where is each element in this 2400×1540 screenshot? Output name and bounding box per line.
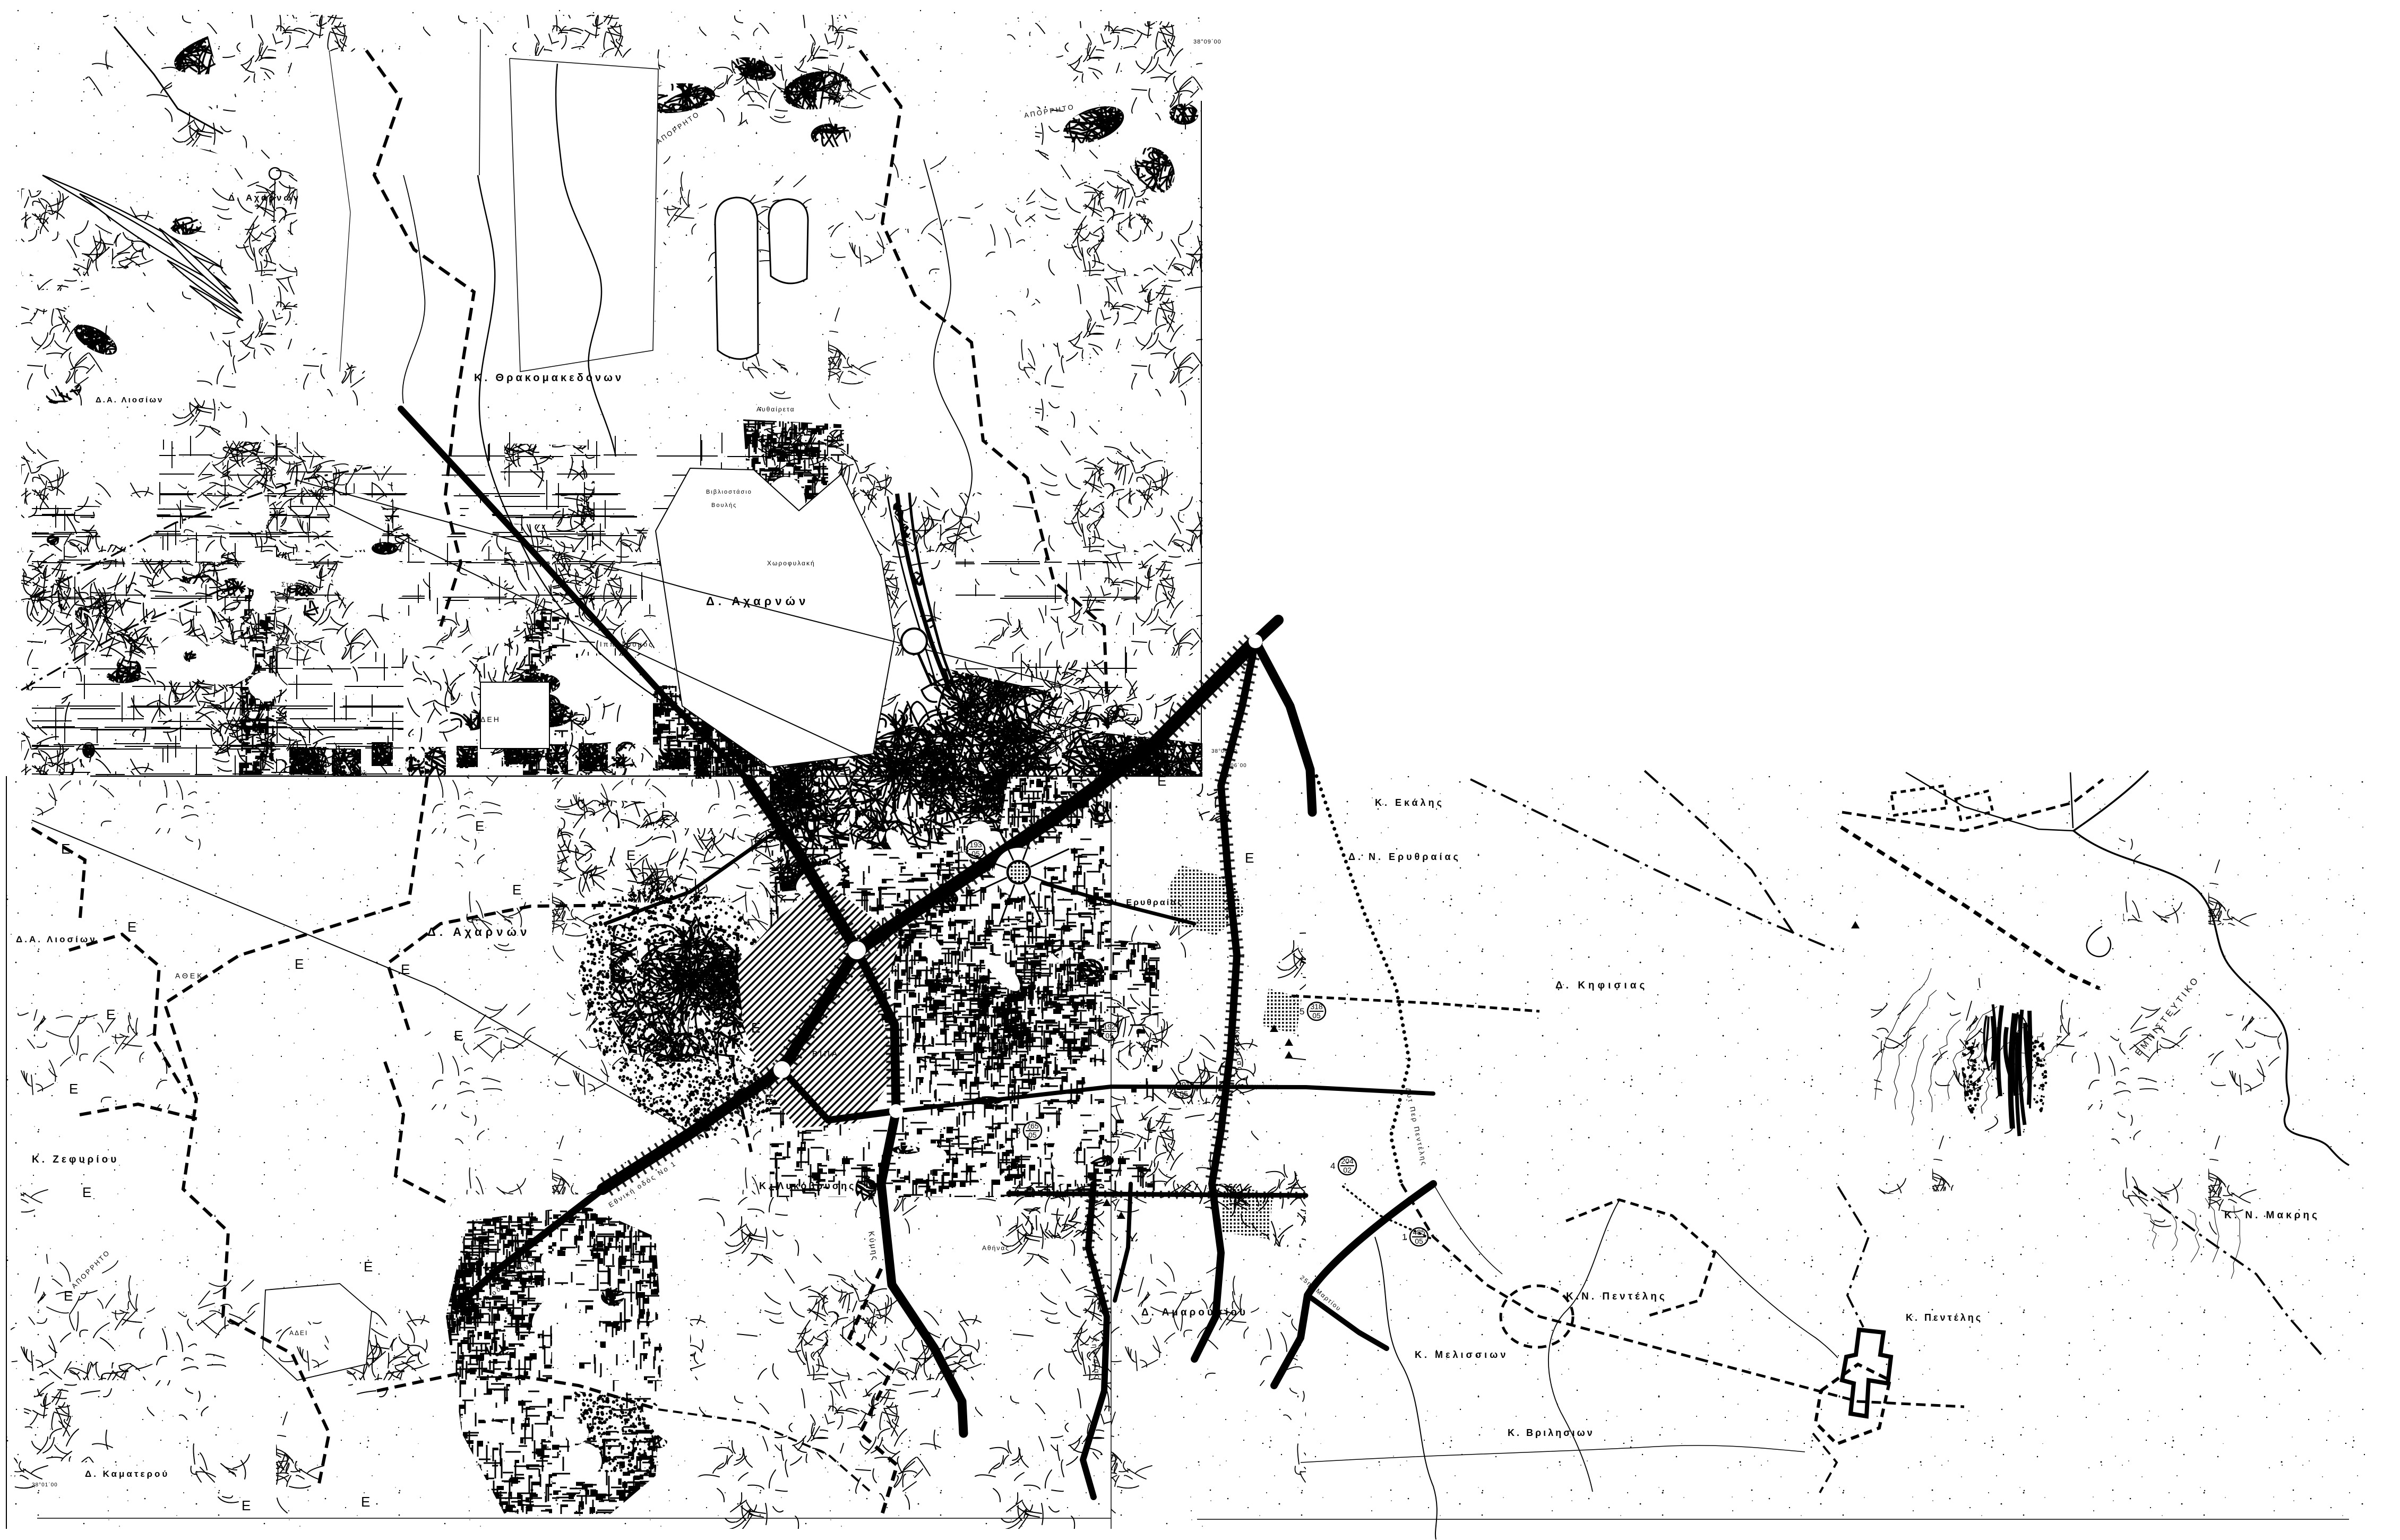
svg-text:Στρατός: Στρατός [281,581,312,588]
svg-text:02: 02 [1343,1166,1352,1174]
svg-text:38°06΄00: 38°06΄00 [1211,748,1237,754]
svg-text:Δ. Κηφισιας: Δ. Κηφισιας [1555,980,1648,991]
svg-text:Βιβλιοστάσιο: Βιβλιοστάσιο [706,489,752,495]
svg-text:Δ. Αχαρνών: Δ. Αχαρνών [706,595,809,608]
svg-text:E: E [751,1020,760,1036]
svg-text:38°09΄00: 38°09΄00 [1193,39,1221,45]
svg-text:E: E [61,841,70,857]
svg-text:Δ.Α. Λιοσίων: Δ.Α. Λιοσίων [96,395,164,405]
svg-text:E: E [364,1259,373,1275]
svg-text:Χωροφυλακή: Χωροφυλακή [767,560,815,567]
svg-text:E: E [661,807,670,823]
svg-text:E: E [82,1184,91,1200]
svg-text:E: E [454,1028,463,1044]
svg-text:E: E [127,919,136,935]
svg-text:05: 05 [1415,1237,1423,1245]
svg-text:Κ. Βριλησιων: Κ. Βριλησιων [1508,1427,1595,1438]
svg-text:E: E [1245,850,1254,866]
svg-text:05: 05 [1105,1031,1114,1040]
svg-text:Βουλής: Βουλής [711,502,737,509]
svg-text:E: E [242,1498,251,1513]
svg-text:Κ. Λυκόβρυσης: Κ. Λυκόβρυσης [759,1181,856,1191]
svg-text:05: 05 [1180,1089,1188,1098]
svg-text:Δ. Αμαρουσίου: Δ. Αμαρουσίου [1141,1307,1248,1318]
svg-text:E: E [69,1081,78,1097]
svg-text:Δ. Αχαρνών: Δ. Αχαρνών [427,925,530,939]
svg-text:05: 05 [1312,1011,1321,1020]
svg-text:05: 05 [971,849,980,858]
svg-text:E: E [361,1494,370,1510]
svg-text:ΒΙΠΑ: ΒΙΠΑ [812,1049,839,1059]
svg-text:E: E [64,1288,73,1304]
svg-text:Δ. Αχαρνών: Δ. Αχαρνών [228,193,300,203]
svg-text:Κ. Πεντέλης: Κ. Πεντέλης [1906,1312,1983,1323]
svg-text:E: E [1221,807,1230,823]
svg-text:Δ.Α. Λιοσίων: Δ.Α. Λιοσίων [16,934,97,944]
svg-text:E: E [764,1091,773,1107]
svg-text:E: E [626,847,635,863]
svg-text:318: 318 [1310,1002,1323,1011]
svg-text:E: E [512,882,521,898]
svg-text:ΑΘΕΚ: ΑΘΕΚ [175,971,204,980]
svg-text:Δ.Ν. Ερυθραίας: Δ.Ν. Ερυθραίας [1099,898,1183,907]
svg-text:E: E [401,961,410,977]
svg-text:Κ. Ζεφυρίου: Κ. Ζεφυρίου [32,1154,119,1165]
svg-text:ΑΔΕΙ: ΑΔΕΙ [289,1329,308,1337]
svg-text:Κ. Θρακομακεδόνων: Κ. Θρακομακεδόνων [474,372,624,384]
svg-text:Στρατός: Στρατός [340,770,368,777]
svg-text:Δ. Καματερού: Δ. Καματερού [85,1469,169,1479]
svg-text:05: 05 [1028,1131,1037,1139]
svg-text:Αθήνας: Αθήνας [982,1244,1010,1252]
svg-text:ΔΕΗ: ΔΕΗ [480,715,501,724]
svg-text:Κ. Ν. Μακρης: Κ. Ν. Μακρης [2224,1210,2320,1221]
svg-text:12: 12 [939,776,949,786]
svg-text:4: 4 [1330,1161,1335,1171]
svg-text:Κ.Ν. Πεντέλης: Κ.Ν. Πεντέλης [1566,1291,1667,1302]
svg-text:8: 8 [1016,1126,1020,1136]
svg-text:1: 1 [1402,1232,1407,1242]
svg-text:13: 13 [959,845,969,855]
svg-text:Ιπποδρομος: Ιπποδρομος [600,640,653,648]
svg-text:38°06΄00: 38°06΄00 [1221,762,1247,769]
svg-text:E: E [1157,773,1166,789]
svg-text:193: 193 [969,840,982,849]
svg-text:Δ. Ν. Ερυθραίας: Δ. Ν. Ερυθραίας [1348,851,1461,862]
svg-text:204: 204 [1341,1157,1354,1165]
svg-text:765: 765 [1026,1122,1039,1130]
svg-text:05: 05 [951,780,960,789]
svg-text:5: 5 [1300,1006,1304,1017]
svg-text:485: 485 [1413,1228,1425,1236]
svg-text:9: 9 [1093,1027,1097,1037]
svg-text:192: 192 [1103,1022,1116,1031]
svg-text:291: 291 [1177,1080,1190,1089]
svg-text:E: E [295,956,304,972]
svg-text:E: E [106,1006,115,1022]
svg-text:Αυθαίρετα: Αυθαίρετα [756,406,795,413]
svg-text:Κ. Εκάλης: Κ. Εκάλης [1375,797,1444,808]
svg-text:221: 221 [949,771,962,780]
svg-text:Δεληγιάννη: Δεληγιάννη [1237,1082,1279,1090]
svg-text:Κ. Μελισσιων: Κ. Μελισσιων [1415,1349,1508,1360]
svg-text:38°01΄00: 38°01΄00 [32,1482,58,1488]
svg-text:E: E [475,818,484,834]
svg-text:6: 6 [1167,1085,1172,1095]
